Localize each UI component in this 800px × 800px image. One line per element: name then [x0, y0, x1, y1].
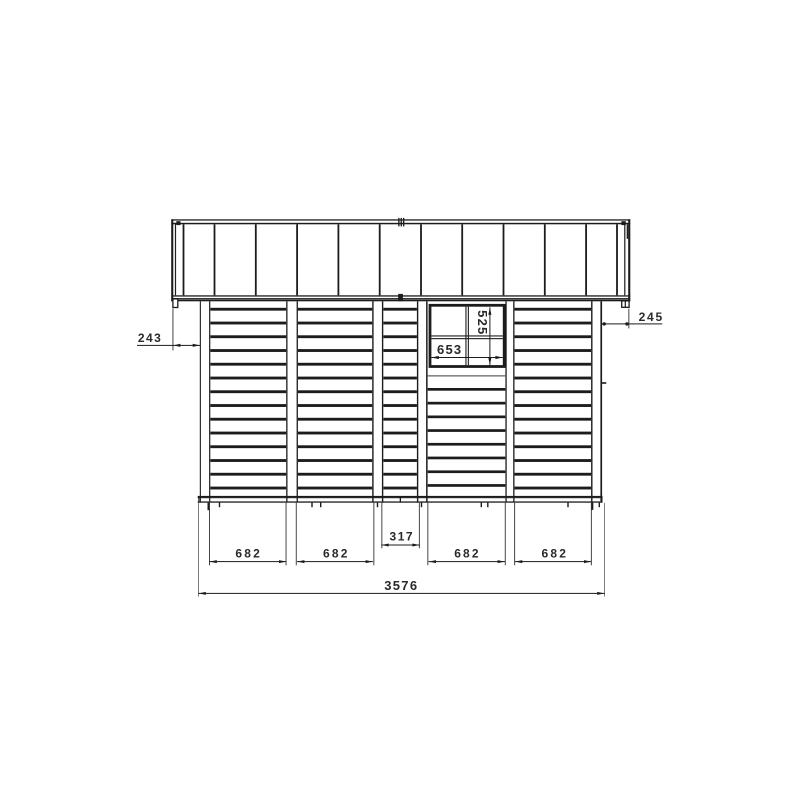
svg-text:317: 317 [390, 529, 415, 543]
svg-text:682: 682 [323, 547, 350, 561]
svg-text:525: 525 [475, 310, 490, 335]
svg-text:245: 245 [639, 310, 664, 324]
svg-text:3576: 3576 [384, 578, 418, 593]
svg-text:682: 682 [454, 547, 481, 561]
svg-text:682: 682 [235, 547, 262, 561]
svg-text:653: 653 [437, 342, 462, 357]
svg-text:243: 243 [138, 331, 163, 345]
svg-text:682: 682 [541, 547, 568, 561]
